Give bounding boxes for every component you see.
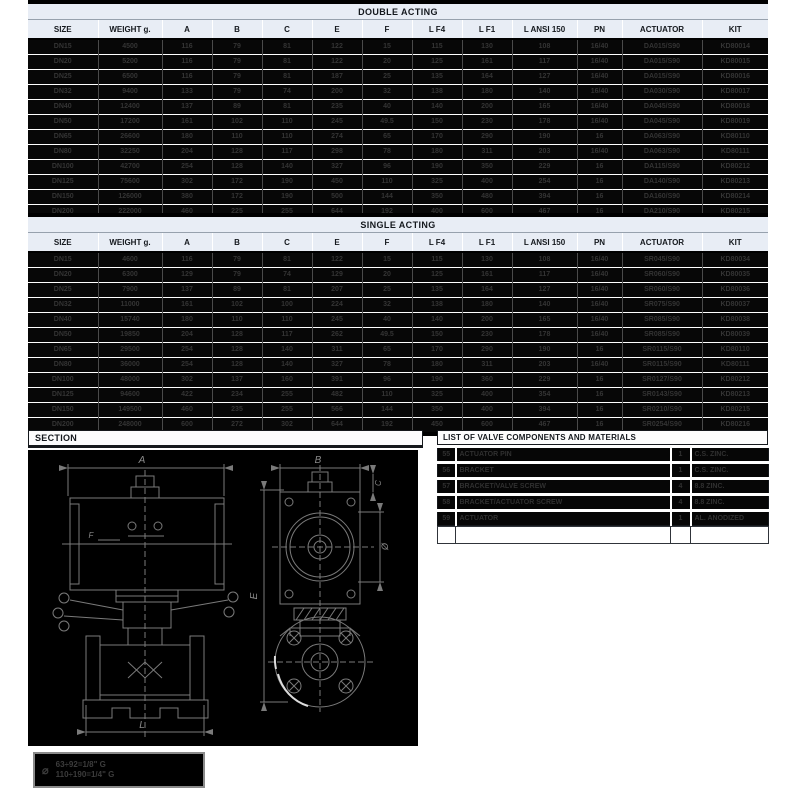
table-row: 57BRACKET/VALVE SCREW48.8 ZINC. bbox=[438, 479, 769, 495]
table-cell: 460 bbox=[162, 403, 212, 418]
spec-table: SIZEWEIGHT g.ABCEFL F4L F1L ANSI 150PNAC… bbox=[28, 233, 768, 432]
table-cell: 200 bbox=[462, 100, 512, 115]
table-title-double-acting: DOUBLE ACTING bbox=[28, 0, 768, 20]
table-cell: 12400 bbox=[98, 100, 162, 115]
table-cell: 164 bbox=[462, 70, 512, 85]
table-cell: 16/40 bbox=[577, 328, 622, 343]
table-cell: 115 bbox=[412, 252, 462, 268]
table-cell: 16 bbox=[577, 373, 622, 388]
table-cell: 40 bbox=[362, 313, 412, 328]
dim-label-e: E bbox=[249, 592, 260, 599]
table-cell: 16/40 bbox=[577, 268, 622, 283]
table-cell: 4 bbox=[671, 479, 691, 495]
table-row: 55ACTUATOR PIN1C.S. ZINC. bbox=[438, 447, 769, 463]
table-cell: 180 bbox=[462, 298, 512, 313]
note-lines: 63÷92=1/8" G 110÷190=1/4" G bbox=[56, 760, 115, 780]
table-cell: 140 bbox=[262, 160, 312, 175]
table-cell: 325 bbox=[412, 175, 462, 190]
table-cell: SR0115/S90 bbox=[622, 358, 702, 373]
table-cell: 254 bbox=[162, 343, 212, 358]
table-cell: 16/40 bbox=[577, 298, 622, 313]
table-cell: 391 bbox=[312, 373, 362, 388]
valve-section-drawing: A F bbox=[28, 450, 418, 746]
table-cell: BRACKET/VALVE SCREW bbox=[456, 479, 671, 495]
table-row: DN1257560030217219045011032540025416DA14… bbox=[28, 175, 768, 190]
components-table: 55ACTUATOR PIN1C.S. ZINC.56BRACKET1C.S. … bbox=[437, 445, 769, 526]
single-acting-table: SINGLE ACTING SIZEWEIGHT g.ABCEFL F4L F1… bbox=[28, 213, 768, 436]
table-cell: 129 bbox=[162, 268, 212, 283]
table-cell: DA160/S90 bbox=[622, 190, 702, 205]
table-cell: 117 bbox=[262, 328, 312, 343]
table-cell: 8.8 ZINC. bbox=[691, 479, 769, 495]
table-cell: DN65 bbox=[28, 343, 98, 358]
column-header: C bbox=[262, 20, 312, 39]
spec-table: SIZEWEIGHT g.ABCEFL F4L F1L ANSI 150PNAC… bbox=[28, 20, 768, 219]
table-cell: 16/40 bbox=[577, 85, 622, 100]
table-cell: DN65 bbox=[28, 130, 98, 145]
column-header: SIZE bbox=[28, 233, 98, 252]
table-cell: 26600 bbox=[98, 130, 162, 145]
table-cell: DN15 bbox=[28, 252, 98, 268]
table-cell: 65 bbox=[362, 130, 412, 145]
table-cell: KD80036 bbox=[702, 283, 768, 298]
table-cell: 15 bbox=[362, 39, 412, 55]
table-cell: 137 bbox=[162, 283, 212, 298]
column-header: E bbox=[312, 233, 362, 252]
column-header-row: SIZEWEIGHT g.ABCEFL F4L F1L ANSI 150PNAC… bbox=[28, 233, 768, 252]
air-connection-note: ⌀ 63÷92=1/8" G 110÷190=1/4" G bbox=[33, 752, 205, 788]
table-cell: 144 bbox=[362, 190, 412, 205]
table-cell: KD80213 bbox=[702, 388, 768, 403]
table-cell: 125 bbox=[412, 268, 462, 283]
table-cell: DA045/S90 bbox=[622, 115, 702, 130]
table-cell: 255 bbox=[262, 403, 312, 418]
column-header: L ANSI 150 bbox=[512, 233, 577, 252]
table-cell: DA063/S90 bbox=[622, 145, 702, 160]
table-cell: 400 bbox=[462, 388, 512, 403]
table-cell: DA063/S90 bbox=[622, 130, 702, 145]
diameter-icon: ⌀ bbox=[42, 764, 49, 777]
table-cell: DN150 bbox=[28, 190, 98, 205]
table-cell: 400 bbox=[462, 403, 512, 418]
table-cell: 16/40 bbox=[577, 55, 622, 70]
table-cell: 110 bbox=[262, 130, 312, 145]
table-cell: 32 bbox=[362, 85, 412, 100]
table-cell: 311 bbox=[462, 358, 512, 373]
table-cell: 75600 bbox=[98, 175, 162, 190]
table-cell: 204 bbox=[162, 328, 212, 343]
table-cell: 6300 bbox=[98, 268, 162, 283]
table-cell: 42700 bbox=[98, 160, 162, 175]
table-row: DN20630012979741292012516111716/40SR060/… bbox=[28, 268, 768, 283]
table-cell: 9400 bbox=[98, 85, 162, 100]
table-cell: 230 bbox=[462, 115, 512, 130]
table-cell: 190 bbox=[412, 160, 462, 175]
column-header: KIT bbox=[702, 20, 768, 39]
table-cell: 16 bbox=[577, 130, 622, 145]
table-cell: 566 bbox=[312, 403, 362, 418]
table-cell: 422 bbox=[162, 388, 212, 403]
table-cell: SR060/S90 bbox=[622, 268, 702, 283]
table-cell: 190 bbox=[412, 373, 462, 388]
table-cell: 230 bbox=[462, 328, 512, 343]
table-cell: 1 bbox=[671, 447, 691, 463]
table-cell: 127 bbox=[512, 70, 577, 85]
table-cell: 207 bbox=[312, 283, 362, 298]
table-cell: 16 bbox=[577, 160, 622, 175]
table-cell: 172 bbox=[212, 190, 262, 205]
table-cell: 17200 bbox=[98, 115, 162, 130]
table-cell: 79 bbox=[212, 252, 262, 268]
table-cell: 127 bbox=[512, 283, 577, 298]
table-cell: 245 bbox=[312, 115, 362, 130]
table-cell: KD80111 bbox=[702, 358, 768, 373]
table-cell: 190 bbox=[262, 175, 312, 190]
table-cell: DN150 bbox=[28, 403, 98, 418]
column-header: C bbox=[262, 233, 312, 252]
table-cell: 5200 bbox=[98, 55, 162, 70]
table-cell: 16/40 bbox=[577, 252, 622, 268]
section-title: SECTION bbox=[28, 430, 423, 448]
table-cell: KD80214 bbox=[702, 190, 768, 205]
table-cell: KD80014 bbox=[702, 39, 768, 55]
table-cell: KD80034 bbox=[702, 252, 768, 268]
table-cell: 130 bbox=[462, 252, 512, 268]
table-cell: DA045/S90 bbox=[622, 100, 702, 115]
table-cell: 32250 bbox=[98, 145, 162, 160]
table-cell: 4 bbox=[671, 495, 691, 511]
table-cell: 16/40 bbox=[577, 70, 622, 85]
table-cell: DA015/S90 bbox=[622, 55, 702, 70]
table-cell: 180 bbox=[162, 130, 212, 145]
column-header: SIZE bbox=[28, 20, 98, 39]
table-cell: 165 bbox=[512, 100, 577, 115]
column-header: PN bbox=[577, 233, 622, 252]
table-cell: 235 bbox=[212, 403, 262, 418]
table-cell: DN100 bbox=[28, 373, 98, 388]
table-cell: DN15 bbox=[28, 39, 98, 55]
column-header: A bbox=[162, 233, 212, 252]
table-cell: 100 bbox=[262, 298, 312, 313]
section-drawing-area: A F bbox=[28, 450, 418, 746]
table-cell: SR085/S90 bbox=[622, 328, 702, 343]
table-cell: 32 bbox=[362, 298, 412, 313]
table-cell: SR085/S90 bbox=[622, 313, 702, 328]
note-line-1: 63÷92=1/8" G bbox=[56, 760, 115, 770]
table-cell: DN20 bbox=[28, 268, 98, 283]
table-cell: 178 bbox=[512, 328, 577, 343]
table-row: 58BRACKET/ACTUATOR SCREW48.8 ZINC. bbox=[438, 495, 769, 511]
table-cell: C.S. ZINC. bbox=[691, 463, 769, 479]
table-cell: 190 bbox=[512, 343, 577, 358]
table-cell: 58 bbox=[438, 495, 456, 511]
table-cell: 262 bbox=[312, 328, 362, 343]
table-cell: 122 bbox=[312, 39, 362, 55]
components-list-title: LIST OF VALVE COMPONENTS AND MATERIALS bbox=[437, 430, 768, 445]
table-cell: 178 bbox=[512, 115, 577, 130]
table-cell: 79 bbox=[212, 85, 262, 100]
table-cell: 350 bbox=[462, 160, 512, 175]
table-cell: KD80111 bbox=[702, 145, 768, 160]
table-cell: 16 bbox=[577, 388, 622, 403]
table-cell: 298 bbox=[312, 145, 362, 160]
table-cell: 290 bbox=[462, 343, 512, 358]
table-cell: 245 bbox=[312, 313, 362, 328]
table-row: DN65295002541281403116517029019016SR0115… bbox=[28, 343, 768, 358]
table-cell: 224 bbox=[312, 298, 362, 313]
column-header: ACTUATOR bbox=[622, 233, 702, 252]
table-cell: 180 bbox=[162, 313, 212, 328]
table-cell: 235 bbox=[312, 100, 362, 115]
table-cell: 128 bbox=[212, 343, 262, 358]
table-cell: 36000 bbox=[98, 358, 162, 373]
table-cell: 110 bbox=[262, 115, 312, 130]
table-cell: 81 bbox=[262, 283, 312, 298]
table-cell: 128 bbox=[212, 328, 262, 343]
dim-label-c: C bbox=[374, 480, 383, 486]
table-cell: 137 bbox=[212, 373, 262, 388]
table-cell: 327 bbox=[312, 358, 362, 373]
table-row: DN15014950046023525556614435040039416SR0… bbox=[28, 403, 768, 418]
column-header: F bbox=[362, 20, 412, 39]
table-row: DN401240013789812354014020016516/40DA045… bbox=[28, 100, 768, 115]
table-cell: 380 bbox=[162, 190, 212, 205]
table-cell: 254 bbox=[162, 358, 212, 373]
column-header: L F1 bbox=[462, 20, 512, 39]
table-row: DN32110001611021002243213818014016/40SR0… bbox=[28, 298, 768, 313]
column-header: F bbox=[362, 233, 412, 252]
table-cell: 140 bbox=[412, 313, 462, 328]
table-cell: KD80038 bbox=[702, 313, 768, 328]
table-cell: 482 bbox=[312, 388, 362, 403]
table-cell: 150 bbox=[412, 328, 462, 343]
table-cell: 6500 bbox=[98, 70, 162, 85]
table-cell: 129 bbox=[312, 268, 362, 283]
table-cell: ACTUATOR bbox=[456, 511, 671, 526]
table-row: DN15460011679811221511513010816/40SR045/… bbox=[28, 252, 768, 268]
table-cell: 200 bbox=[462, 313, 512, 328]
table-cell: 394 bbox=[512, 190, 577, 205]
table-cell: 79 bbox=[212, 70, 262, 85]
table-cell: 128 bbox=[212, 358, 262, 373]
table-cell: 1 bbox=[671, 463, 691, 479]
table-cell: 170 bbox=[412, 130, 462, 145]
table-cell: DA115/S90 bbox=[622, 160, 702, 175]
table-cell: 25 bbox=[362, 70, 412, 85]
table-cell: 302 bbox=[162, 373, 212, 388]
table-cell: 116 bbox=[162, 55, 212, 70]
table-cell: KD80212 bbox=[702, 160, 768, 175]
column-header: WEIGHT g. bbox=[98, 20, 162, 39]
table-cell: DN100 bbox=[28, 160, 98, 175]
table-cell: 4500 bbox=[98, 39, 162, 55]
table-cell: 255 bbox=[262, 388, 312, 403]
table-cell: KD80039 bbox=[702, 328, 768, 343]
table-cell: KD80018 bbox=[702, 100, 768, 115]
table-cell: 96 bbox=[362, 373, 412, 388]
table-cell: 81 bbox=[262, 252, 312, 268]
table-cell: 25 bbox=[362, 283, 412, 298]
table-cell: 161 bbox=[462, 268, 512, 283]
table-cell: 74 bbox=[262, 85, 312, 100]
table-cell: 122 bbox=[312, 252, 362, 268]
table-row: DN32940013379742003213818014016/40DA030/… bbox=[28, 85, 768, 100]
table-cell: 74 bbox=[262, 268, 312, 283]
dim-label-f: F bbox=[89, 531, 95, 540]
table-cell: ACTUATOR PIN bbox=[456, 447, 671, 463]
table-cell: 48000 bbox=[98, 373, 162, 388]
column-header: ACTUATOR bbox=[622, 20, 702, 39]
table-cell: 203 bbox=[512, 145, 577, 160]
table-cell: 170 bbox=[412, 343, 462, 358]
table-cell: 128 bbox=[212, 160, 262, 175]
table-row: DN15012600038017219050014435048039416DA1… bbox=[28, 190, 768, 205]
table-cell: 78 bbox=[362, 145, 412, 160]
column-header: L F4 bbox=[412, 20, 462, 39]
table-cell: 160 bbox=[262, 373, 312, 388]
table-cell: KD80212 bbox=[702, 373, 768, 388]
table-cell: 360 bbox=[462, 373, 512, 388]
table-cell: 79 bbox=[212, 39, 262, 55]
table-row: 56BRACKET1C.S. ZINC. bbox=[438, 463, 769, 479]
table-cell: SR045/S90 bbox=[622, 252, 702, 268]
table-cell: 55 bbox=[438, 447, 456, 463]
table-cell: 117 bbox=[512, 55, 577, 70]
table-cell: DN25 bbox=[28, 283, 98, 298]
table-cell: 110 bbox=[212, 313, 262, 328]
column-header: WEIGHT g. bbox=[98, 233, 162, 252]
table-cell: BRACKET/ACTUATOR SCREW bbox=[456, 495, 671, 511]
table-cell: 327 bbox=[312, 160, 362, 175]
table-cell: 115 bbox=[412, 39, 462, 55]
table-cell: 65 bbox=[362, 343, 412, 358]
dim-label-l: L bbox=[139, 720, 145, 731]
table-cell: 79 bbox=[212, 55, 262, 70]
table-cell: 19850 bbox=[98, 328, 162, 343]
table-cell: 108 bbox=[512, 39, 577, 55]
table-cell: 16/40 bbox=[577, 358, 622, 373]
table-cell: 102 bbox=[212, 298, 262, 313]
table-cell: 20 bbox=[362, 55, 412, 70]
table-cell: 7900 bbox=[98, 283, 162, 298]
table-cell: 1 bbox=[671, 511, 691, 526]
table-cell: C.S. ZINC. bbox=[691, 447, 769, 463]
table-cell: 79 bbox=[212, 268, 262, 283]
table-cell: 20 bbox=[362, 268, 412, 283]
table-row: DN25790013789812072513516412716/40SR060/… bbox=[28, 283, 768, 298]
table-cell: KD80110 bbox=[702, 343, 768, 358]
table-cell: KD80215 bbox=[702, 403, 768, 418]
table-cell: 149500 bbox=[98, 403, 162, 418]
table-cell: 229 bbox=[512, 373, 577, 388]
note-line-2: 110÷190=1/4" G bbox=[56, 770, 115, 780]
table-cell: 311 bbox=[462, 145, 512, 160]
table-cell: 11000 bbox=[98, 298, 162, 313]
table-cell: 254 bbox=[162, 160, 212, 175]
table-cell: 138 bbox=[412, 85, 462, 100]
table-cell: 137 bbox=[162, 100, 212, 115]
table-cell: 116 bbox=[162, 39, 212, 55]
table-cell: SR075/S90 bbox=[622, 298, 702, 313]
table-cell: 144 bbox=[362, 403, 412, 418]
table-cell: SR0210/S90 bbox=[622, 403, 702, 418]
table-row: DN80322502041281172987818031120316/40DA0… bbox=[28, 145, 768, 160]
table-cell: DN50 bbox=[28, 328, 98, 343]
datasheet-page: { "tables": { "columns": ["SIZE", "WEIGH… bbox=[0, 0, 800, 800]
table-cell: 16/40 bbox=[577, 283, 622, 298]
table-cell: DN25 bbox=[28, 70, 98, 85]
table-cell: 59 bbox=[438, 511, 456, 526]
table-cell: DA030/S90 bbox=[622, 85, 702, 100]
table-row: DN20520011679811222012516111716/40DA015/… bbox=[28, 55, 768, 70]
table-cell: AL. ANODIZED bbox=[691, 511, 769, 526]
table-cell: 15 bbox=[362, 252, 412, 268]
table-cell: 135 bbox=[412, 70, 462, 85]
table-cell: 180 bbox=[412, 145, 462, 160]
table-cell: 350 bbox=[412, 403, 462, 418]
table-cell: 229 bbox=[512, 160, 577, 175]
table-row: DN501985020412811726249.515023017816/40S… bbox=[28, 328, 768, 343]
table-cell: KD80016 bbox=[702, 70, 768, 85]
table-cell: 49.5 bbox=[362, 328, 412, 343]
table-cell: DA140/S90 bbox=[622, 175, 702, 190]
table-cell: 190 bbox=[512, 130, 577, 145]
table-cell: 15740 bbox=[98, 313, 162, 328]
double-acting-table: DOUBLE ACTING SIZEWEIGHT g.ABCEFL F4L F1… bbox=[28, 0, 768, 223]
table-cell: KD80015 bbox=[702, 55, 768, 70]
table-cell: 254 bbox=[512, 175, 577, 190]
table-cell: 110 bbox=[362, 388, 412, 403]
table-cell: SR0115/S90 bbox=[622, 343, 702, 358]
table-cell: 126000 bbox=[98, 190, 162, 205]
table-cell: 133 bbox=[162, 85, 212, 100]
table-cell: DN125 bbox=[28, 388, 98, 403]
column-header: PN bbox=[577, 20, 622, 39]
table-cell: 150 bbox=[412, 115, 462, 130]
table-cell: 500 bbox=[312, 190, 362, 205]
table-cell: 110 bbox=[362, 175, 412, 190]
table-cell: 165 bbox=[512, 313, 577, 328]
table-cell: 164 bbox=[462, 283, 512, 298]
table-row: DN65266001801101102746517029019016DA063/… bbox=[28, 130, 768, 145]
table-cell: 116 bbox=[162, 252, 212, 268]
table-cell: 161 bbox=[162, 115, 212, 130]
table-cell: 4600 bbox=[98, 252, 162, 268]
table-cell: 89 bbox=[212, 283, 262, 298]
table-cell: KD80019 bbox=[702, 115, 768, 130]
table-cell: 57 bbox=[438, 479, 456, 495]
table-cell: BRACKET bbox=[456, 463, 671, 479]
table-cell: 16 bbox=[577, 403, 622, 418]
table-cell: 108 bbox=[512, 252, 577, 268]
table-row: DN100480003021371603919619036022916SR012… bbox=[28, 373, 768, 388]
table-row: DN100427002541281403279619035022916DA115… bbox=[28, 160, 768, 175]
table-cell: DA015/S90 bbox=[622, 39, 702, 55]
table-cell: 140 bbox=[262, 343, 312, 358]
table-cell: 16 bbox=[577, 175, 622, 190]
table-cell: DN32 bbox=[28, 298, 98, 313]
table-cell: SR0127/S90 bbox=[622, 373, 702, 388]
table-row: DN80360002541281403277818031120316/40SR0… bbox=[28, 358, 768, 373]
table-cell: 16 bbox=[577, 343, 622, 358]
table-cell: 350 bbox=[412, 190, 462, 205]
table-cell: 450 bbox=[312, 175, 362, 190]
table-cell: DN125 bbox=[28, 175, 98, 190]
table-cell: 117 bbox=[262, 145, 312, 160]
table-cell: 187 bbox=[312, 70, 362, 85]
table-cell: 140 bbox=[412, 100, 462, 115]
table-cell: 311 bbox=[312, 343, 362, 358]
